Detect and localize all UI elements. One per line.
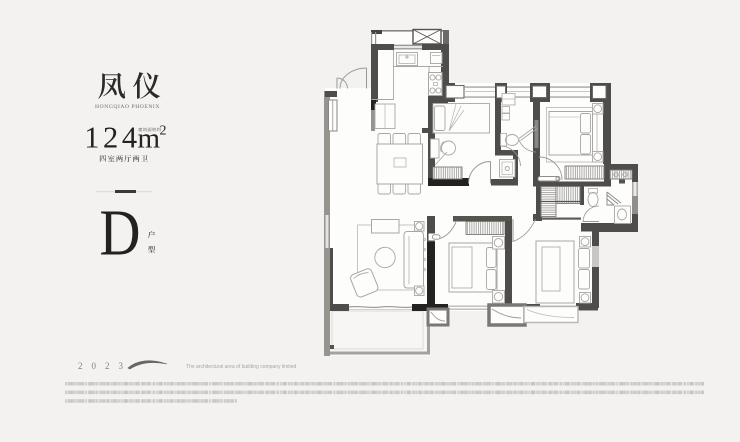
svg-text:124: 124: [84, 121, 141, 155]
svg-text:2023: 2023: [78, 361, 132, 371]
svg-text:2: 2: [160, 124, 167, 139]
svg-text:HONGQIAO PHOENIX: HONGQIAO PHOENIX: [95, 104, 160, 110]
svg-text:m: m: [138, 123, 161, 155]
svg-text:The architectural area of buil: The architectural area of building compa…: [186, 364, 297, 370]
svg-text:D: D: [100, 197, 141, 270]
